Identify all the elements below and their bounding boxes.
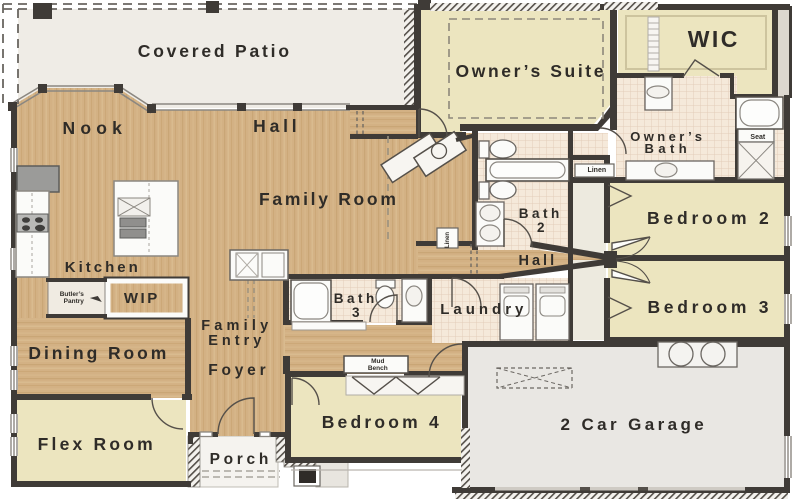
svg-text:WIP: WIP <box>124 290 160 307</box>
svg-text:Pantry: Pantry <box>64 298 85 305</box>
svg-text:Bedroom 3: Bedroom 3 <box>647 297 772 317</box>
svg-text:Mud: Mud <box>371 358 384 365</box>
svg-text:Family Room: Family Room <box>259 189 399 209</box>
svg-text:2 Car Garage: 2 Car Garage <box>560 415 707 434</box>
svg-text:Porch: Porch <box>210 451 272 468</box>
svg-text:Dining Room: Dining Room <box>28 343 169 363</box>
svg-text:Linen: Linen <box>445 232 451 248</box>
svg-text:Bedroom 4: Bedroom 4 <box>322 412 442 432</box>
svg-text:Owner’s Suite: Owner’s Suite <box>456 61 607 81</box>
svg-text:Entry: Entry <box>208 333 265 349</box>
svg-text:Hall: Hall <box>519 253 558 269</box>
svg-text:Bath: Bath <box>519 206 563 221</box>
svg-text:Flex Room: Flex Room <box>38 434 156 454</box>
svg-text:Linen: Linen <box>587 167 606 174</box>
svg-text:3: 3 <box>352 305 360 320</box>
svg-text:Hall: Hall <box>253 116 300 136</box>
svg-text:WIC: WIC <box>688 26 740 52</box>
svg-text:Kitchen: Kitchen <box>65 259 141 276</box>
svg-text:Bedroom 2: Bedroom 2 <box>647 208 773 228</box>
svg-text:Bench: Bench <box>368 365 388 372</box>
svg-text:Covered Patio: Covered Patio <box>138 41 292 61</box>
svg-text:Seat: Seat <box>750 134 765 141</box>
svg-text:2: 2 <box>537 220 545 235</box>
svg-text:Butler’s: Butler’s <box>60 291 85 298</box>
svg-text:Bath: Bath <box>334 291 378 306</box>
svg-text:Bath: Bath <box>645 141 692 156</box>
svg-text:Laundry: Laundry <box>440 301 527 318</box>
svg-text:Nook: Nook <box>63 118 128 138</box>
svg-text:Family: Family <box>201 318 272 334</box>
svg-text:Foyer: Foyer <box>208 362 269 379</box>
